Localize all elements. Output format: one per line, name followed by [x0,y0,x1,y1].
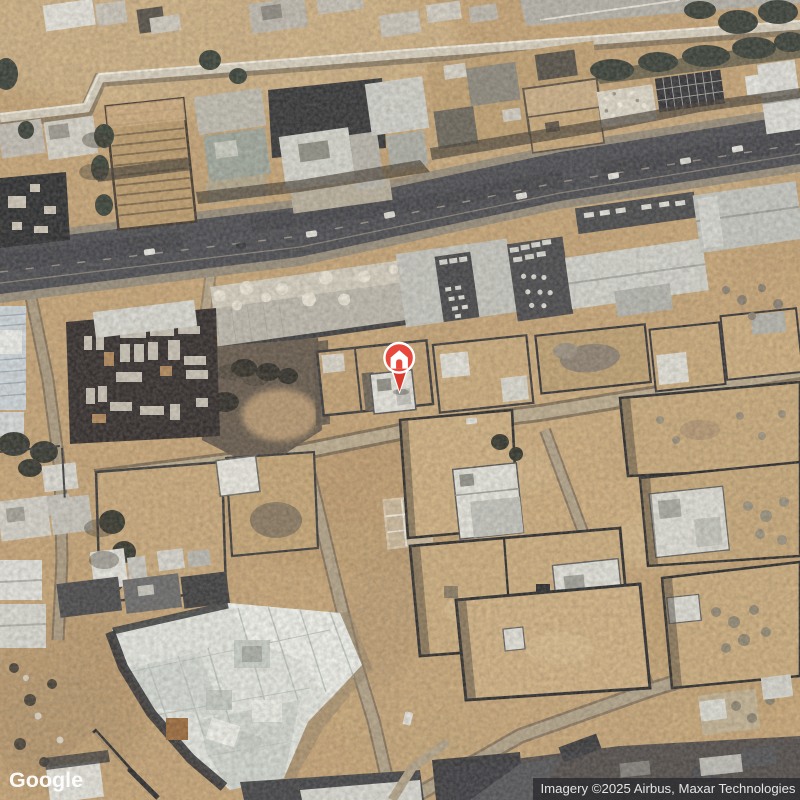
svg-text:Imagery ©2025 Airbus, Maxar Te: Imagery ©2025 Airbus, Maxar Technologies [540,781,795,796]
svg-text:Google: Google [9,768,83,792]
